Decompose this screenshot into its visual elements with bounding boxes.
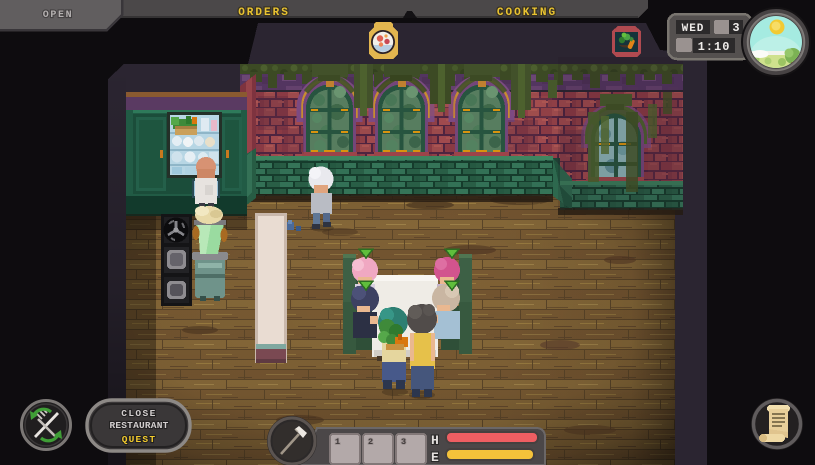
svg-text:CLOSE: CLOSE xyxy=(121,408,157,419)
svg-text:QUEST: QUEST xyxy=(122,434,157,445)
svg-text:OPEN: OPEN xyxy=(43,10,73,21)
svg-text:ORDERS: ORDERS xyxy=(238,7,290,19)
svg-text:3: 3 xyxy=(732,21,739,35)
svg-text:RESTAURANT: RESTAURANT xyxy=(109,420,168,431)
svg-text:WED: WED xyxy=(682,23,705,35)
svg-text:COOKING: COOKING xyxy=(497,7,557,19)
svg-text:H: H xyxy=(431,433,439,448)
svg-text:E: E xyxy=(431,450,439,465)
svg-text:2: 2 xyxy=(368,437,373,447)
svg-text:1:10: 1:10 xyxy=(698,40,731,54)
svg-text:3: 3 xyxy=(401,437,406,447)
svg-text:1: 1 xyxy=(335,437,340,447)
